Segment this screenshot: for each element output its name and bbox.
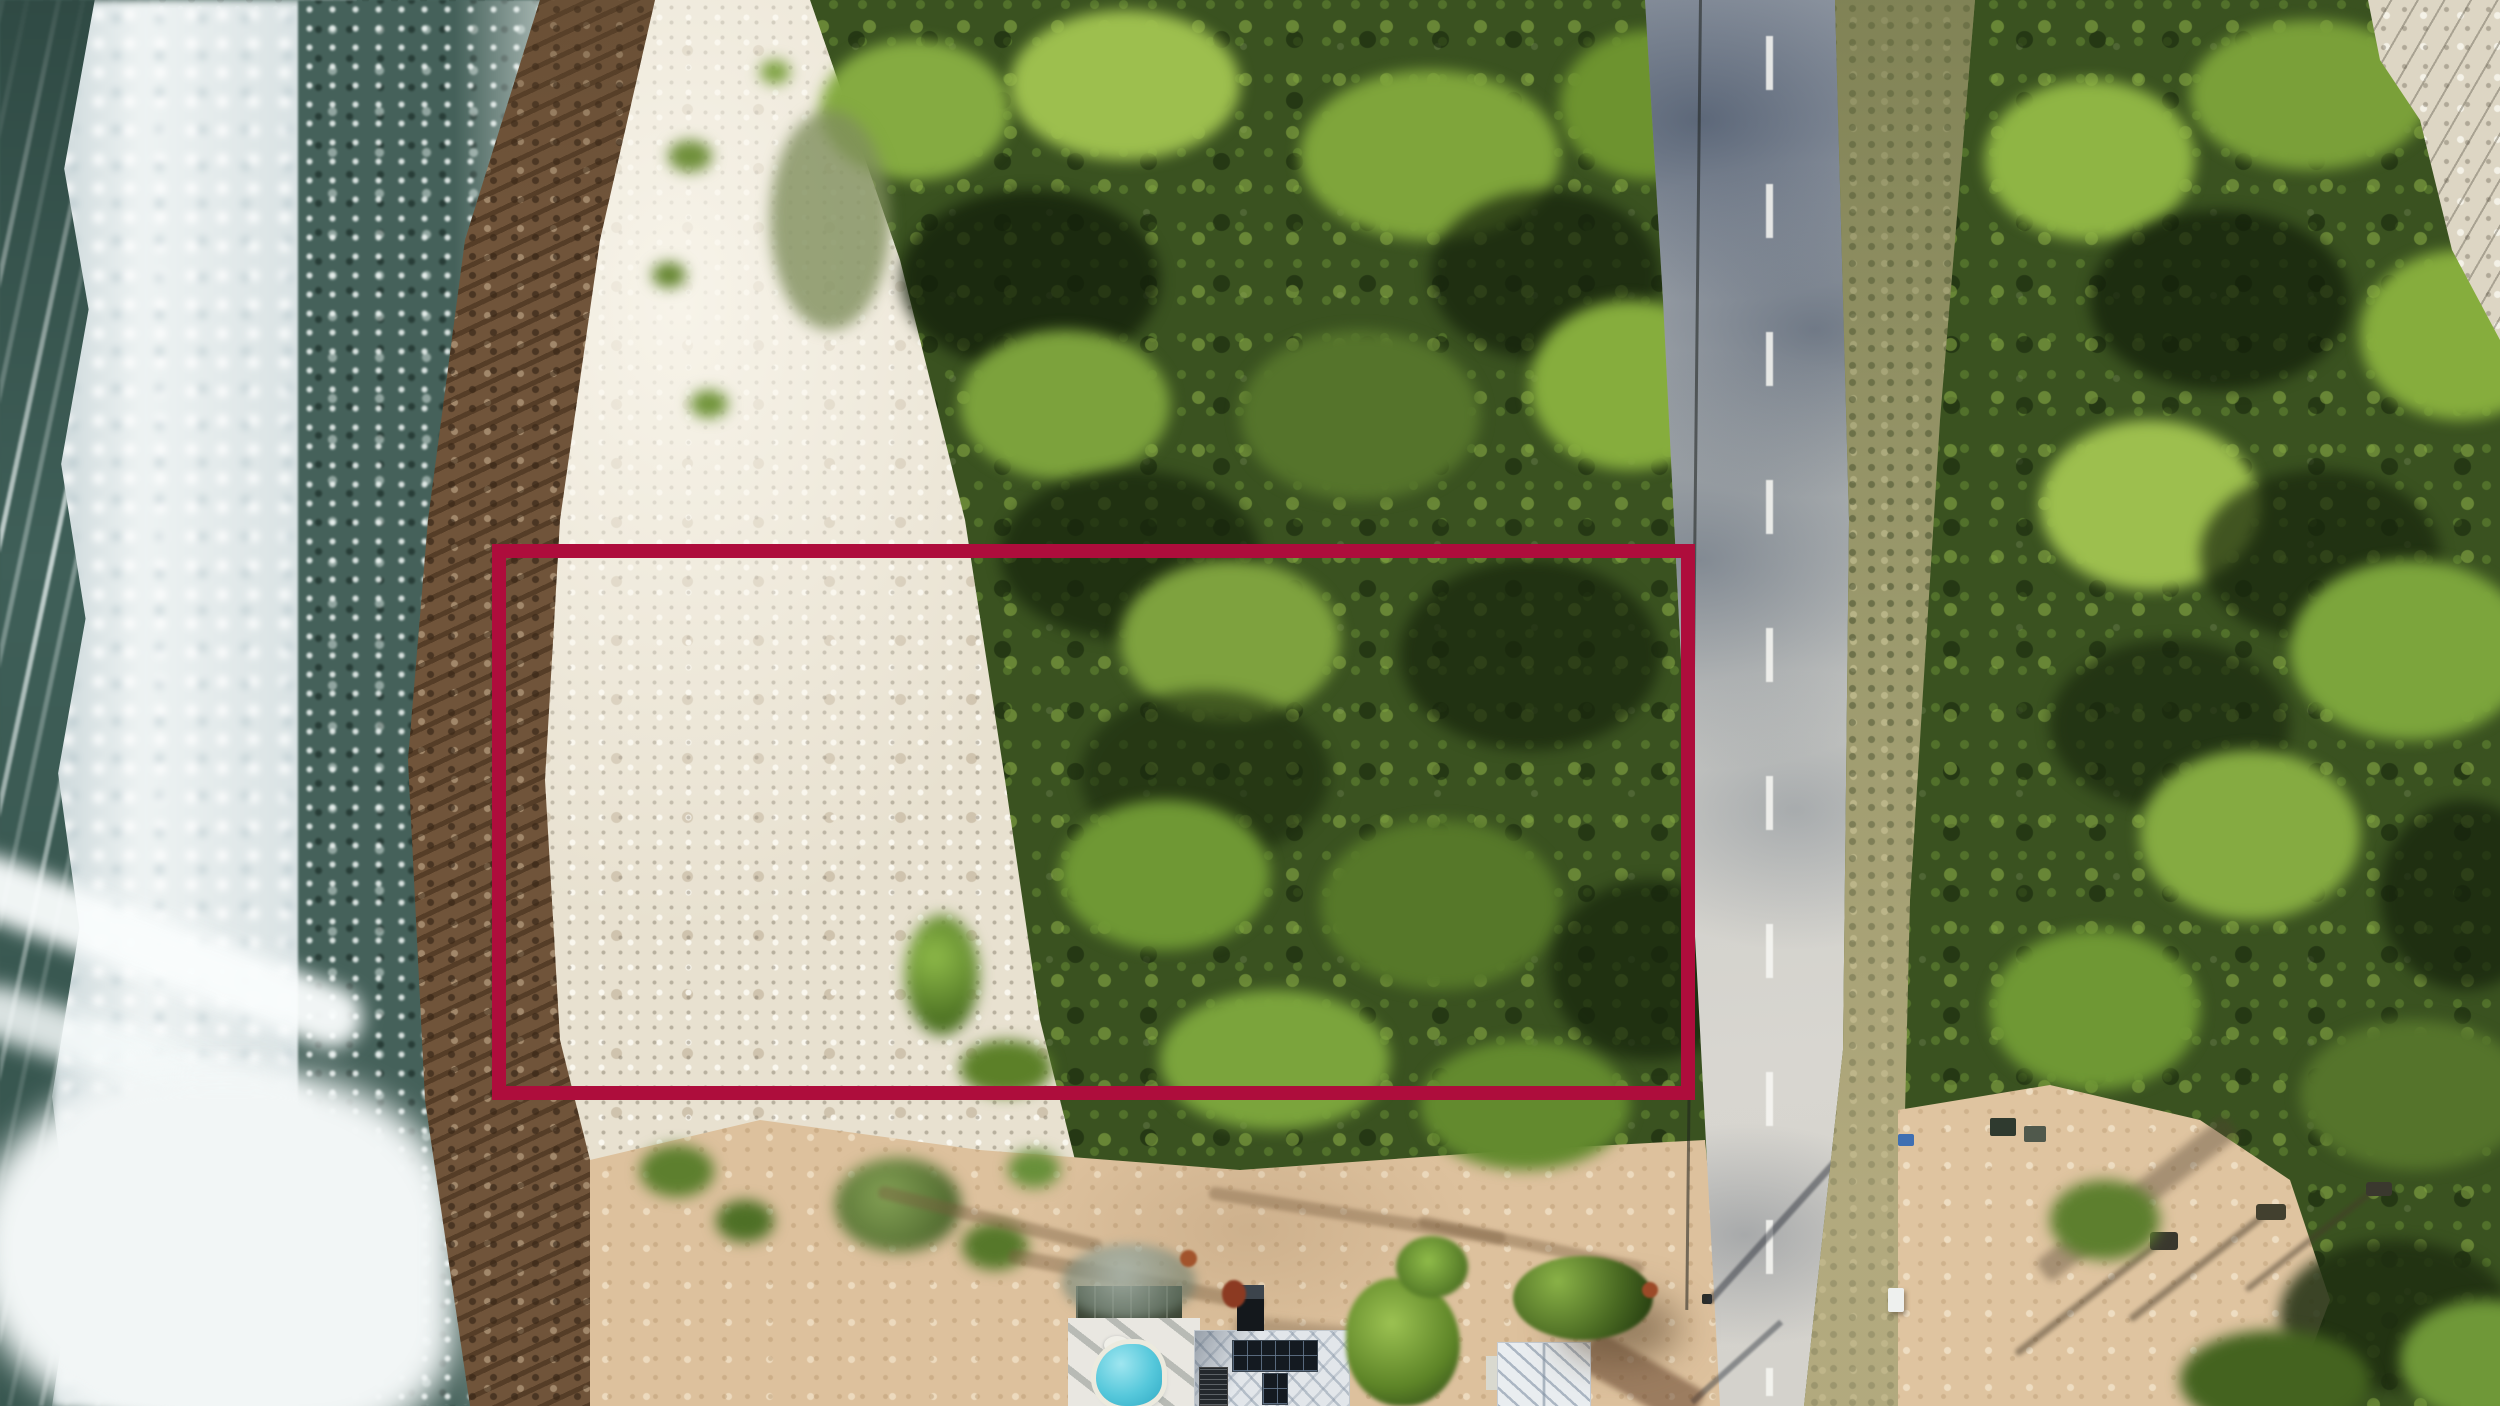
parcel-boundary bbox=[492, 544, 1695, 1100]
rust-shrub bbox=[1180, 1250, 1197, 1267]
tree-canopy-blob bbox=[1990, 930, 2200, 1090]
rust-shrub bbox=[1222, 1280, 1246, 1308]
pool bbox=[1096, 1344, 1162, 1406]
tree-canopy-blob bbox=[1240, 330, 1480, 500]
tree-canopy-blob bbox=[1010, 10, 1240, 160]
bush bbox=[716, 1200, 774, 1242]
tree-canopy-blob bbox=[2140, 750, 2360, 920]
bush bbox=[1008, 1150, 1060, 1188]
moss-patch bbox=[760, 60, 790, 84]
moss-patch bbox=[690, 390, 728, 418]
solar-panel-array bbox=[1262, 1373, 1288, 1405]
canopy-shadow-blob bbox=[2380, 800, 2500, 990]
roadside-object bbox=[1990, 1118, 2016, 1136]
roadside-bench bbox=[2256, 1204, 2286, 1220]
moss-patch bbox=[668, 140, 712, 172]
aerial-photo bbox=[0, 0, 2500, 1406]
roadside-sign bbox=[1888, 1288, 1904, 1312]
dry-scrub-blob bbox=[770, 110, 890, 330]
whitewash-surf bbox=[0, 1072, 455, 1406]
guest-house-roof bbox=[1497, 1342, 1591, 1406]
canopy-shadow-blob bbox=[2090, 210, 2350, 390]
round-hedge bbox=[1513, 1256, 1653, 1340]
moss-patch bbox=[652, 262, 686, 288]
blue-object bbox=[1898, 1134, 1914, 1146]
rust-shrub bbox=[1642, 1282, 1658, 1298]
bush bbox=[2050, 1180, 2160, 1260]
tree-canopy-blob bbox=[2300, 1020, 2500, 1170]
tree-canopy-blob bbox=[960, 330, 1170, 480]
roadside-bench bbox=[2366, 1182, 2392, 1196]
tree-canopy-blob bbox=[1985, 80, 2195, 240]
palm-tree bbox=[1396, 1236, 1468, 1298]
bush bbox=[640, 1145, 714, 1197]
silver-palm-tree bbox=[1062, 1244, 1196, 1320]
solar-panel-array bbox=[1232, 1340, 1318, 1372]
louvered-shutter bbox=[1199, 1367, 1228, 1406]
roadside-object bbox=[2024, 1126, 2046, 1142]
road-centerline bbox=[1766, 36, 1773, 1396]
palm-tree bbox=[1346, 1278, 1460, 1406]
